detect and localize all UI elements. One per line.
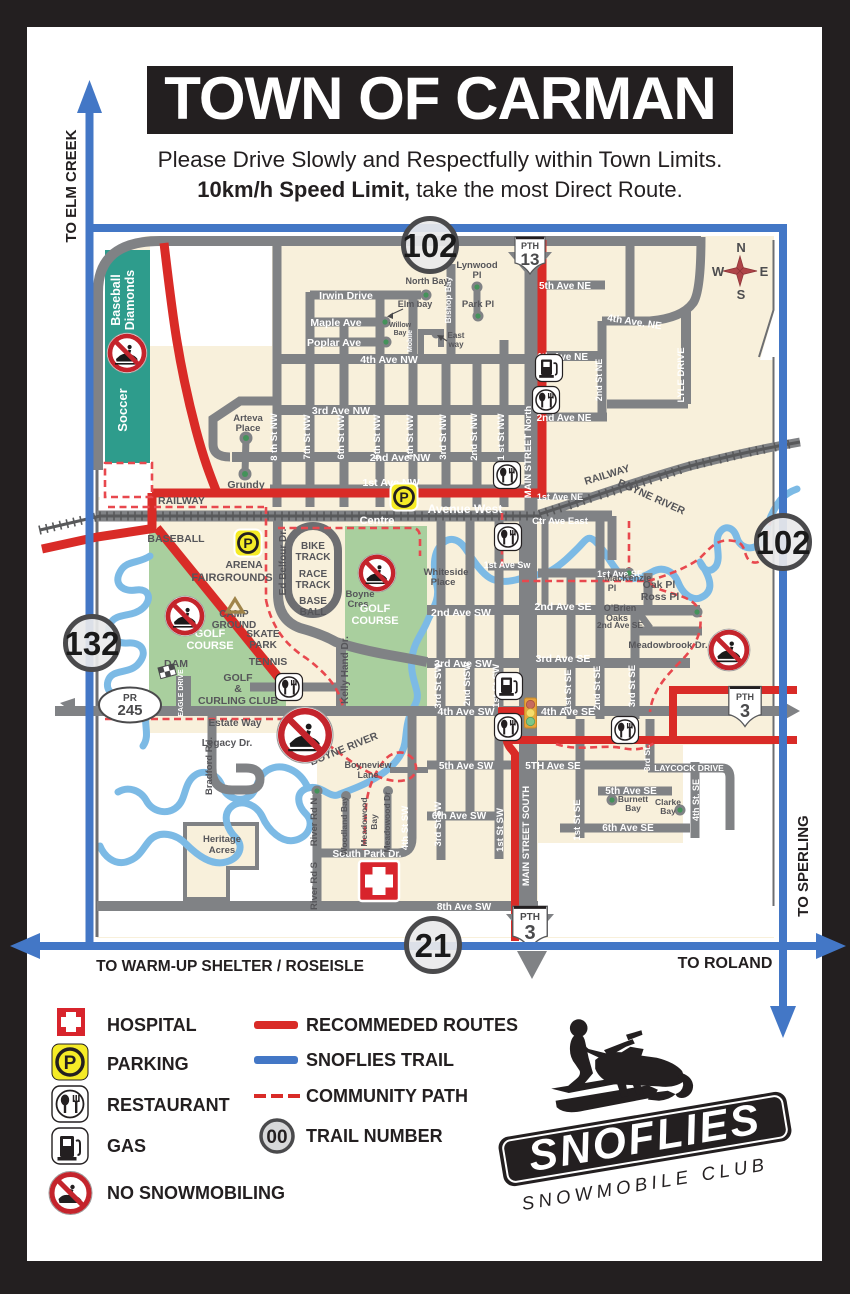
svg-text:132: 132: [64, 625, 119, 662]
svg-text:Willow: Willow: [389, 322, 412, 329]
svg-text:4th St. SE: 4th St. SE: [691, 779, 701, 821]
svg-text:1st St SE: 1st St SE: [563, 669, 574, 710]
svg-text:2nd Ave SE: 2nd Ave SE: [597, 620, 643, 630]
svg-text:Bradford Rd.: Bradford Rd.: [204, 737, 215, 795]
svg-text:Kelly Hand Dr.: Kelly Hand Dr.: [340, 636, 351, 704]
svg-text:Park Pl: Park Pl: [462, 299, 494, 310]
svg-text:Bay: Bay: [394, 330, 407, 337]
svg-text:Bay: Bay: [660, 806, 676, 816]
svg-text:2nd Ave NE: 2nd Ave NE: [537, 413, 592, 424]
svg-text:3rd Ave SE: 3rd Ave SE: [536, 653, 591, 665]
svg-text:Pl: Pl: [608, 583, 617, 593]
svg-text:8th Ave SW: 8th Ave SW: [437, 902, 492, 913]
svg-text:4th St NW: 4th St NW: [405, 415, 416, 460]
svg-text:102: 102: [755, 524, 810, 561]
svg-text:way: way: [447, 340, 464, 349]
svg-text:3rd St SW: 3rd St SW: [433, 664, 444, 709]
svg-text:RACE: RACE: [299, 569, 328, 580]
svg-text:TRACK: TRACK: [296, 552, 332, 563]
svg-text:RAILWAY: RAILWAY: [158, 495, 205, 507]
svg-text:3: 3: [740, 701, 750, 721]
svg-text:4th Ave NW: 4th Ave NW: [360, 354, 418, 366]
svg-text:COURSE: COURSE: [351, 615, 398, 627]
svg-text:Ross Pl: Ross Pl: [641, 591, 680, 603]
svg-text:BASEBALL: BASEBALL: [147, 533, 205, 545]
svg-text:2nd St SE: 2nd St SE: [592, 666, 603, 710]
svg-text:COMMUNITY PATH: COMMUNITY PATH: [306, 1086, 468, 1106]
svg-text:Poplar Ave: Poplar Ave: [307, 337, 361, 349]
svg-text:2nd Ave SW: 2nd Ave SW: [431, 607, 491, 619]
svg-text:21: 21: [415, 927, 452, 964]
svg-text:SNOFLIES TRAIL: SNOFLIES TRAIL: [306, 1050, 454, 1070]
svg-text:245: 245: [117, 702, 142, 719]
svg-text:3rd St NW: 3rd St NW: [438, 414, 449, 459]
svg-text:BIKE: BIKE: [301, 541, 325, 552]
svg-text:E: E: [760, 264, 769, 279]
svg-text:3: 3: [524, 922, 535, 944]
svg-text:S: S: [737, 287, 746, 302]
svg-text:4th St SW: 4th St SW: [400, 806, 411, 850]
svg-text:TOWN OF CARMAN: TOWN OF CARMAN: [164, 65, 716, 132]
svg-text:MAIN STREET SOUTH: MAIN STREET SOUTH: [521, 786, 532, 886]
svg-text:Woodland Bay: Woodland Bay: [339, 796, 349, 855]
svg-text:5th St NW: 5th St NW: [372, 415, 383, 460]
svg-text:1st St SE: 1st St SE: [572, 799, 583, 840]
svg-text:1st Ave Sw: 1st Ave Sw: [484, 560, 532, 570]
svg-text:North Bay: North Bay: [405, 276, 448, 286]
svg-text:1st St SW: 1st St SW: [495, 808, 506, 852]
svg-text:2nd StSW: 2nd StSW: [462, 662, 473, 706]
svg-text:&: &: [234, 683, 242, 695]
svg-text:Oak Pl: Oak Pl: [643, 579, 676, 591]
svg-text:Bay: Bay: [369, 814, 379, 830]
svg-text:102: 102: [402, 227, 457, 264]
svg-text:2nd Ave SE: 2nd Ave SE: [535, 601, 592, 613]
svg-text:6th St NW: 6th St NW: [336, 415, 347, 460]
svg-text:MAIN STREET North: MAIN STREET North: [523, 406, 534, 499]
svg-text:EAGLE DRIVE: EAGLE DRIVE: [178, 669, 185, 717]
svg-text:Soccer: Soccer: [115, 388, 130, 431]
svg-text:5th Ave NE: 5th Ave NE: [539, 281, 591, 292]
svg-text:River Rd N: River Rd N: [309, 798, 320, 847]
svg-text:TENNIS: TENNIS: [249, 656, 288, 668]
svg-text:Place: Place: [431, 577, 456, 588]
svg-text:Heritage: Heritage: [203, 834, 241, 845]
svg-text:RECOMMEDED ROUTES: RECOMMEDED ROUTES: [306, 1015, 518, 1035]
svg-text:1st Ave NE: 1st Ave NE: [537, 492, 583, 502]
svg-text:PARK: PARK: [249, 640, 277, 651]
svg-text:4th Ave SW: 4th Ave SW: [438, 706, 495, 718]
svg-text:PARKING: PARKING: [107, 1054, 189, 1074]
svg-text:NO SNOWMOBILING: NO SNOWMOBILING: [107, 1183, 285, 1203]
svg-text:TO SPERLING: TO SPERLING: [795, 815, 812, 916]
svg-text:8 th St NW: 8 th St NW: [269, 413, 280, 461]
svg-text:Ctr Ave East: Ctr Ave East: [532, 516, 589, 527]
svg-text:ARENA: ARENA: [225, 559, 263, 571]
svg-text:W: W: [712, 264, 725, 279]
svg-text:Boyneview: Boyneview: [344, 760, 392, 770]
svg-text:Please Drive Slowly and Respec: Please Drive Slowly and Respectfully wit…: [158, 147, 723, 172]
svg-text:5th Ave SW: 5th Ave SW: [439, 761, 494, 772]
svg-text:TO WARM-UP SHELTER / ROSEISLE: TO WARM-UP SHELTER / ROSEISLE: [96, 958, 364, 975]
svg-text:Pl: Pl: [473, 270, 482, 281]
svg-text:TRACK: TRACK: [296, 580, 332, 591]
svg-text:3rd St.: 3rd St.: [642, 745, 652, 771]
svg-text:N: N: [736, 240, 745, 255]
svg-text:River Rd S: River Rd S: [309, 862, 320, 910]
svg-text:3rd St SW: 3rd St SW: [433, 802, 444, 847]
svg-text:6th Ave SE: 6th Ave SE: [602, 823, 654, 834]
svg-text:O’Brien: O’Brien: [604, 603, 637, 613]
svg-text:CURLING CLUB: CURLING CLUB: [198, 695, 278, 707]
svg-text:GOLF: GOLF: [360, 603, 391, 615]
svg-text:Meadowood Dr: Meadowood Dr: [382, 791, 392, 853]
svg-text:Ed Belfour Dr.: Ed Belfour Dr.: [278, 528, 289, 595]
svg-text:TO ELM CREEK: TO ELM CREEK: [63, 129, 80, 242]
svg-text:Meadowbrook Dr.: Meadowbrook Dr.: [628, 640, 707, 651]
svg-text:SKATE: SKATE: [246, 629, 279, 640]
svg-text:East: East: [448, 331, 465, 340]
svg-text:RESTAURANT: RESTAURANT: [107, 1095, 230, 1115]
svg-text:7th St NW: 7th St NW: [302, 415, 313, 460]
svg-text:Bay: Bay: [625, 803, 641, 813]
svg-text:Centre: Centre: [360, 515, 395, 527]
svg-text:FAIRGROUNDS: FAIRGROUNDS: [191, 572, 272, 584]
svg-text:3rd St SE: 3rd St SE: [627, 665, 638, 707]
svg-text:5TH Ave SE: 5TH Ave SE: [525, 761, 581, 772]
svg-text:LYLE DRIVE: LYLE DRIVE: [676, 347, 687, 402]
svg-text:Irwin Drive: Irwin Drive: [319, 290, 373, 302]
svg-text:COURSE: COURSE: [186, 640, 233, 652]
svg-text:TRAIL NUMBER: TRAIL NUMBER: [306, 1126, 443, 1146]
svg-text:Estate Way: Estate Way: [209, 718, 262, 729]
svg-text:LAYCOCK DRIVE: LAYCOCK DRIVE: [654, 763, 724, 773]
svg-text:10km/h Speed Limit, take the m: 10km/h Speed Limit, take the most Direct…: [197, 177, 682, 202]
svg-text:Place: Place: [236, 423, 261, 434]
svg-text:Grundy: Grundy: [227, 479, 264, 491]
svg-text:Mobile: Mobile: [407, 330, 414, 352]
svg-text:2nd St NE: 2nd St NE: [594, 359, 604, 402]
svg-text:1 st St NW: 1 st St NW: [496, 413, 507, 460]
svg-text:Meadowood: Meadowood: [359, 797, 369, 846]
svg-text:Acres: Acres: [209, 845, 235, 856]
svg-text:Elm bay: Elm bay: [398, 299, 433, 309]
svg-text:Maple Ave: Maple Ave: [310, 317, 361, 329]
svg-text:BALL: BALL: [300, 607, 327, 618]
svg-text:2nd St NW: 2nd St NW: [469, 413, 480, 461]
svg-text:Avenue West: Avenue West: [428, 502, 503, 516]
svg-text:Diamonds: Diamonds: [123, 270, 137, 330]
svg-text:13: 13: [521, 250, 540, 269]
svg-text:TO ROLAND: TO ROLAND: [678, 955, 773, 972]
svg-text:Baseball: Baseball: [109, 274, 123, 325]
svg-text:00: 00: [266, 1127, 287, 1148]
svg-text:GAS: GAS: [107, 1136, 146, 1156]
svg-text:Lane: Lane: [357, 770, 378, 780]
svg-text:HOSPITAL: HOSPITAL: [107, 1015, 197, 1035]
svg-text:BASE: BASE: [299, 596, 327, 607]
svg-text:P: P: [64, 1053, 77, 1074]
